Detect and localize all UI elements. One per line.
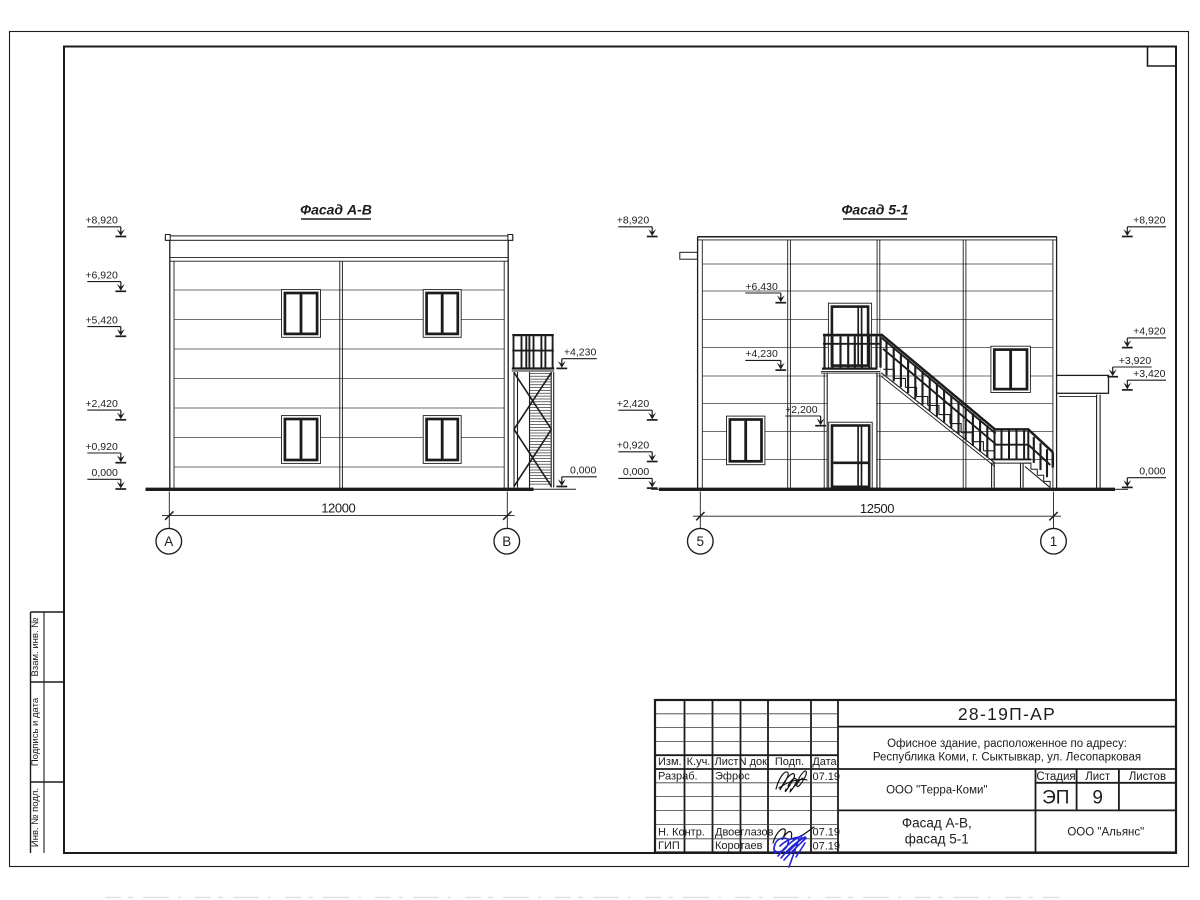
svg-text:Двоеглазов: Двоеглазов: [715, 826, 774, 838]
svg-text:07.19: 07.19: [813, 771, 841, 783]
svg-text:+0,920: +0,920: [617, 440, 650, 452]
svg-text:+5,420: +5,420: [85, 314, 118, 326]
svg-text:Инв. № подл.: Инв. № подл.: [30, 788, 41, 847]
svg-text:+2,420: +2,420: [617, 398, 650, 410]
svg-text:N док.: N док.: [739, 756, 770, 768]
svg-text:+6,920: +6,920: [85, 269, 118, 281]
svg-text:+4,230: +4,230: [745, 348, 778, 360]
svg-text:В: В: [502, 534, 511, 549]
svg-text:К.уч.: К.уч.: [687, 756, 711, 768]
svg-text:12500: 12500: [860, 501, 894, 516]
svg-text:1: 1: [1050, 534, 1058, 549]
svg-text:Разраб.: Разраб.: [658, 771, 698, 783]
svg-text:0,000: 0,000: [92, 467, 118, 479]
svg-text:9: 9: [1092, 787, 1103, 808]
svg-text:Подпись и дата: Подпись и дата: [30, 697, 41, 766]
svg-text:Н. Контр.: Н. Контр.: [658, 826, 705, 838]
svg-text:Офисное здание, расположенное: Офисное здание, расположенное по адресу:: [887, 738, 1127, 750]
svg-text:ООО "Терра-Коми": ООО "Терра-Коми": [886, 785, 987, 797]
svg-text:+3,420: +3,420: [1133, 368, 1166, 380]
svg-text:+0,920: +0,920: [85, 441, 118, 453]
svg-text:+8,920: +8,920: [1133, 215, 1166, 227]
svg-text:Лист: Лист: [715, 756, 739, 768]
svg-text:07.19: 07.19: [813, 827, 841, 839]
svg-text:Фасад 5-1: Фасад 5-1: [841, 202, 908, 218]
svg-text:07.19: 07.19: [813, 840, 841, 852]
svg-text:+6,430: +6,430: [745, 281, 778, 293]
svg-text:5: 5: [697, 534, 705, 549]
svg-text:Подп.: Подп.: [775, 756, 804, 768]
svg-text:0,000: 0,000: [623, 466, 649, 478]
svg-text:+8,920: +8,920: [85, 215, 118, 227]
svg-text:Дата: Дата: [812, 756, 837, 768]
svg-text:Лист: Лист: [1085, 771, 1111, 783]
svg-text:28-19П-АР: 28-19П-АР: [958, 704, 1056, 724]
svg-text:+4,920: +4,920: [1133, 326, 1166, 338]
svg-text:Изм.: Изм.: [658, 756, 682, 768]
svg-text:Эфрос: Эфрос: [715, 771, 750, 783]
svg-text:12000: 12000: [321, 501, 355, 516]
svg-text:Листов: Листов: [1129, 771, 1166, 783]
svg-text:+3,920: +3,920: [1119, 355, 1152, 367]
svg-text:фасад 5-1: фасад 5-1: [905, 831, 969, 846]
svg-text:А: А: [164, 534, 173, 549]
svg-text:0,000: 0,000: [570, 465, 596, 477]
svg-text:+2,420: +2,420: [85, 398, 118, 410]
svg-text:ООО "Альянс": ООО "Альянс": [1067, 827, 1144, 839]
svg-text:+4,230: +4,230: [564, 347, 597, 359]
svg-text:Взам. инв. №: Взам. инв. №: [30, 618, 41, 677]
svg-text:Стадия: Стадия: [1036, 771, 1075, 783]
svg-text:+8,920: +8,920: [617, 215, 650, 227]
svg-text:Фасад А-В: Фасад А-В: [300, 202, 372, 218]
svg-text:0,000: 0,000: [1139, 466, 1165, 478]
svg-text:Коротаев: Коротаев: [715, 840, 763, 852]
svg-text:ЭП: ЭП: [1042, 787, 1069, 808]
svg-text:Фасад А-В,: Фасад А-В,: [902, 816, 972, 831]
svg-text:+2,200: +2,200: [785, 404, 818, 416]
svg-text:Республика Коми, г. Сыктывкар,: Республика Коми, г. Сыктывкар, ул. Лесоп…: [873, 751, 1141, 763]
svg-text:ГИП: ГИП: [658, 840, 680, 852]
